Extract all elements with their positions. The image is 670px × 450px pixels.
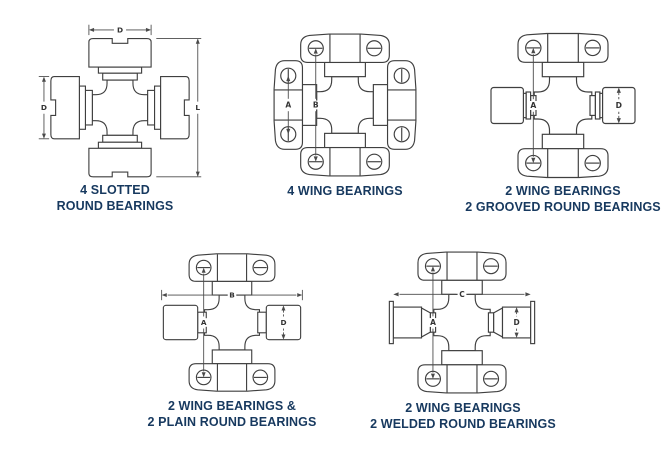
dim-overall-A: A	[429, 266, 438, 379]
figure-wing-welded: C A D 2 WING BEARINGS 2 WELDED ROUND BEA…	[363, 245, 563, 433]
cross-body	[317, 77, 374, 134]
wing-bearing-top	[189, 254, 275, 295]
dim-label-overall: A	[201, 318, 207, 327]
caption-line: 2 WING BEARINGS &	[137, 398, 327, 414]
wing-bearing-bottom	[301, 133, 390, 176]
drawing-wing-welded: C A D	[381, 245, 543, 400]
caption-line: 2 WING BEARINGS	[452, 183, 670, 199]
grooved-bearing-right	[590, 88, 635, 124]
caption-four-wing: 4 WING BEARINGS	[252, 183, 438, 199]
slotted-bearing-bottom	[89, 135, 151, 176]
welded-bearing-right	[488, 301, 534, 343]
caption-wing-grooved: 2 WING BEARINGS 2 GROOVED ROUND BEARINGS	[452, 183, 670, 216]
wing-bearing-left	[274, 61, 317, 150]
caption-wing-welded: 2 WING BEARINGS 2 WELDED ROUND BEARINGS	[363, 400, 563, 433]
wing-bearing-bottom	[418, 351, 506, 393]
dim-label-overall-width: B	[229, 291, 235, 300]
cross-body	[205, 295, 260, 350]
slotted-bearing-left	[51, 77, 92, 139]
drawing-four-wing: A B	[265, 27, 425, 183]
slotted-bearing-top	[89, 39, 151, 80]
caption-line: 2 WELDED ROUND BEARINGS	[363, 416, 563, 432]
drawing-wing-plain: B A D	[153, 247, 311, 398]
dim-label-diameter: D	[280, 318, 286, 327]
dim-label-diameter: D	[41, 103, 47, 112]
dim-width-D: D	[89, 25, 151, 35]
dim-label-diameter: D	[513, 318, 519, 327]
dim-diameter-D: D	[39, 77, 49, 139]
caption-line: 2 PLAIN ROUND BEARINGS	[137, 414, 327, 430]
dim-overall-width-B: B	[162, 290, 303, 300]
caption-wing-plain: 2 WING BEARINGS & 2 PLAIN ROUND BEARINGS	[137, 398, 327, 431]
wing-bearing-right	[373, 61, 416, 150]
dim-overall-width-C: C	[393, 290, 530, 299]
dim-label-width: D	[117, 25, 123, 34]
caption-line: ROUND BEARINGS	[20, 198, 210, 214]
caption-line: 2 WING BEARINGS	[363, 400, 563, 416]
wing-bearing-top	[418, 252, 506, 294]
dim-overall-A: A	[529, 48, 538, 163]
slotted-bearing-right	[148, 77, 189, 139]
cross-body	[534, 77, 592, 135]
drawing-wing-grooved: A D	[482, 28, 644, 183]
dim-label-overall: B	[313, 101, 319, 110]
caption-line: 4 WING BEARINGS	[252, 183, 438, 199]
wing-bearing-top	[518, 34, 608, 77]
dim-overall-B: B	[311, 48, 320, 161]
cross-body	[92, 80, 147, 135]
dim-overall-A: A	[199, 268, 208, 378]
caption-slotted-round: 4 SLOTTED ROUND BEARINGS	[20, 182, 210, 215]
drawing-slotted-round: D D L	[37, 23, 203, 182]
caption-line: 4 SLOTTED	[20, 182, 210, 198]
dim-label-overall: A	[530, 101, 536, 110]
figure-wing-grooved: A D 2 WING BEARINGS 2 GROOVED ROUND BEAR…	[452, 28, 670, 216]
wing-bearing-top	[301, 34, 390, 77]
wing-bearing-bottom	[189, 350, 275, 391]
figure-slotted-round: D D L 4 SLOTTED ROUND BEARINGS	[20, 23, 210, 215]
dim-label-overall: A	[430, 318, 436, 327]
dim-label-lug-span: A	[285, 101, 291, 110]
figure-wing-plain: B A D 2 WING BEARINGS & 2 PLAIN ROUND BE…	[137, 247, 327, 431]
dim-label-overall-width: C	[459, 290, 464, 299]
wing-bearing-bottom	[518, 134, 608, 177]
dim-label-diameter: D	[616, 101, 622, 110]
figure-four-wing: A B 4 WING BEARINGS	[252, 27, 438, 199]
dim-label-length: L	[195, 103, 200, 112]
caption-line: 2 GROOVED ROUND BEARINGS	[452, 199, 670, 215]
cross-body	[434, 294, 490, 350]
